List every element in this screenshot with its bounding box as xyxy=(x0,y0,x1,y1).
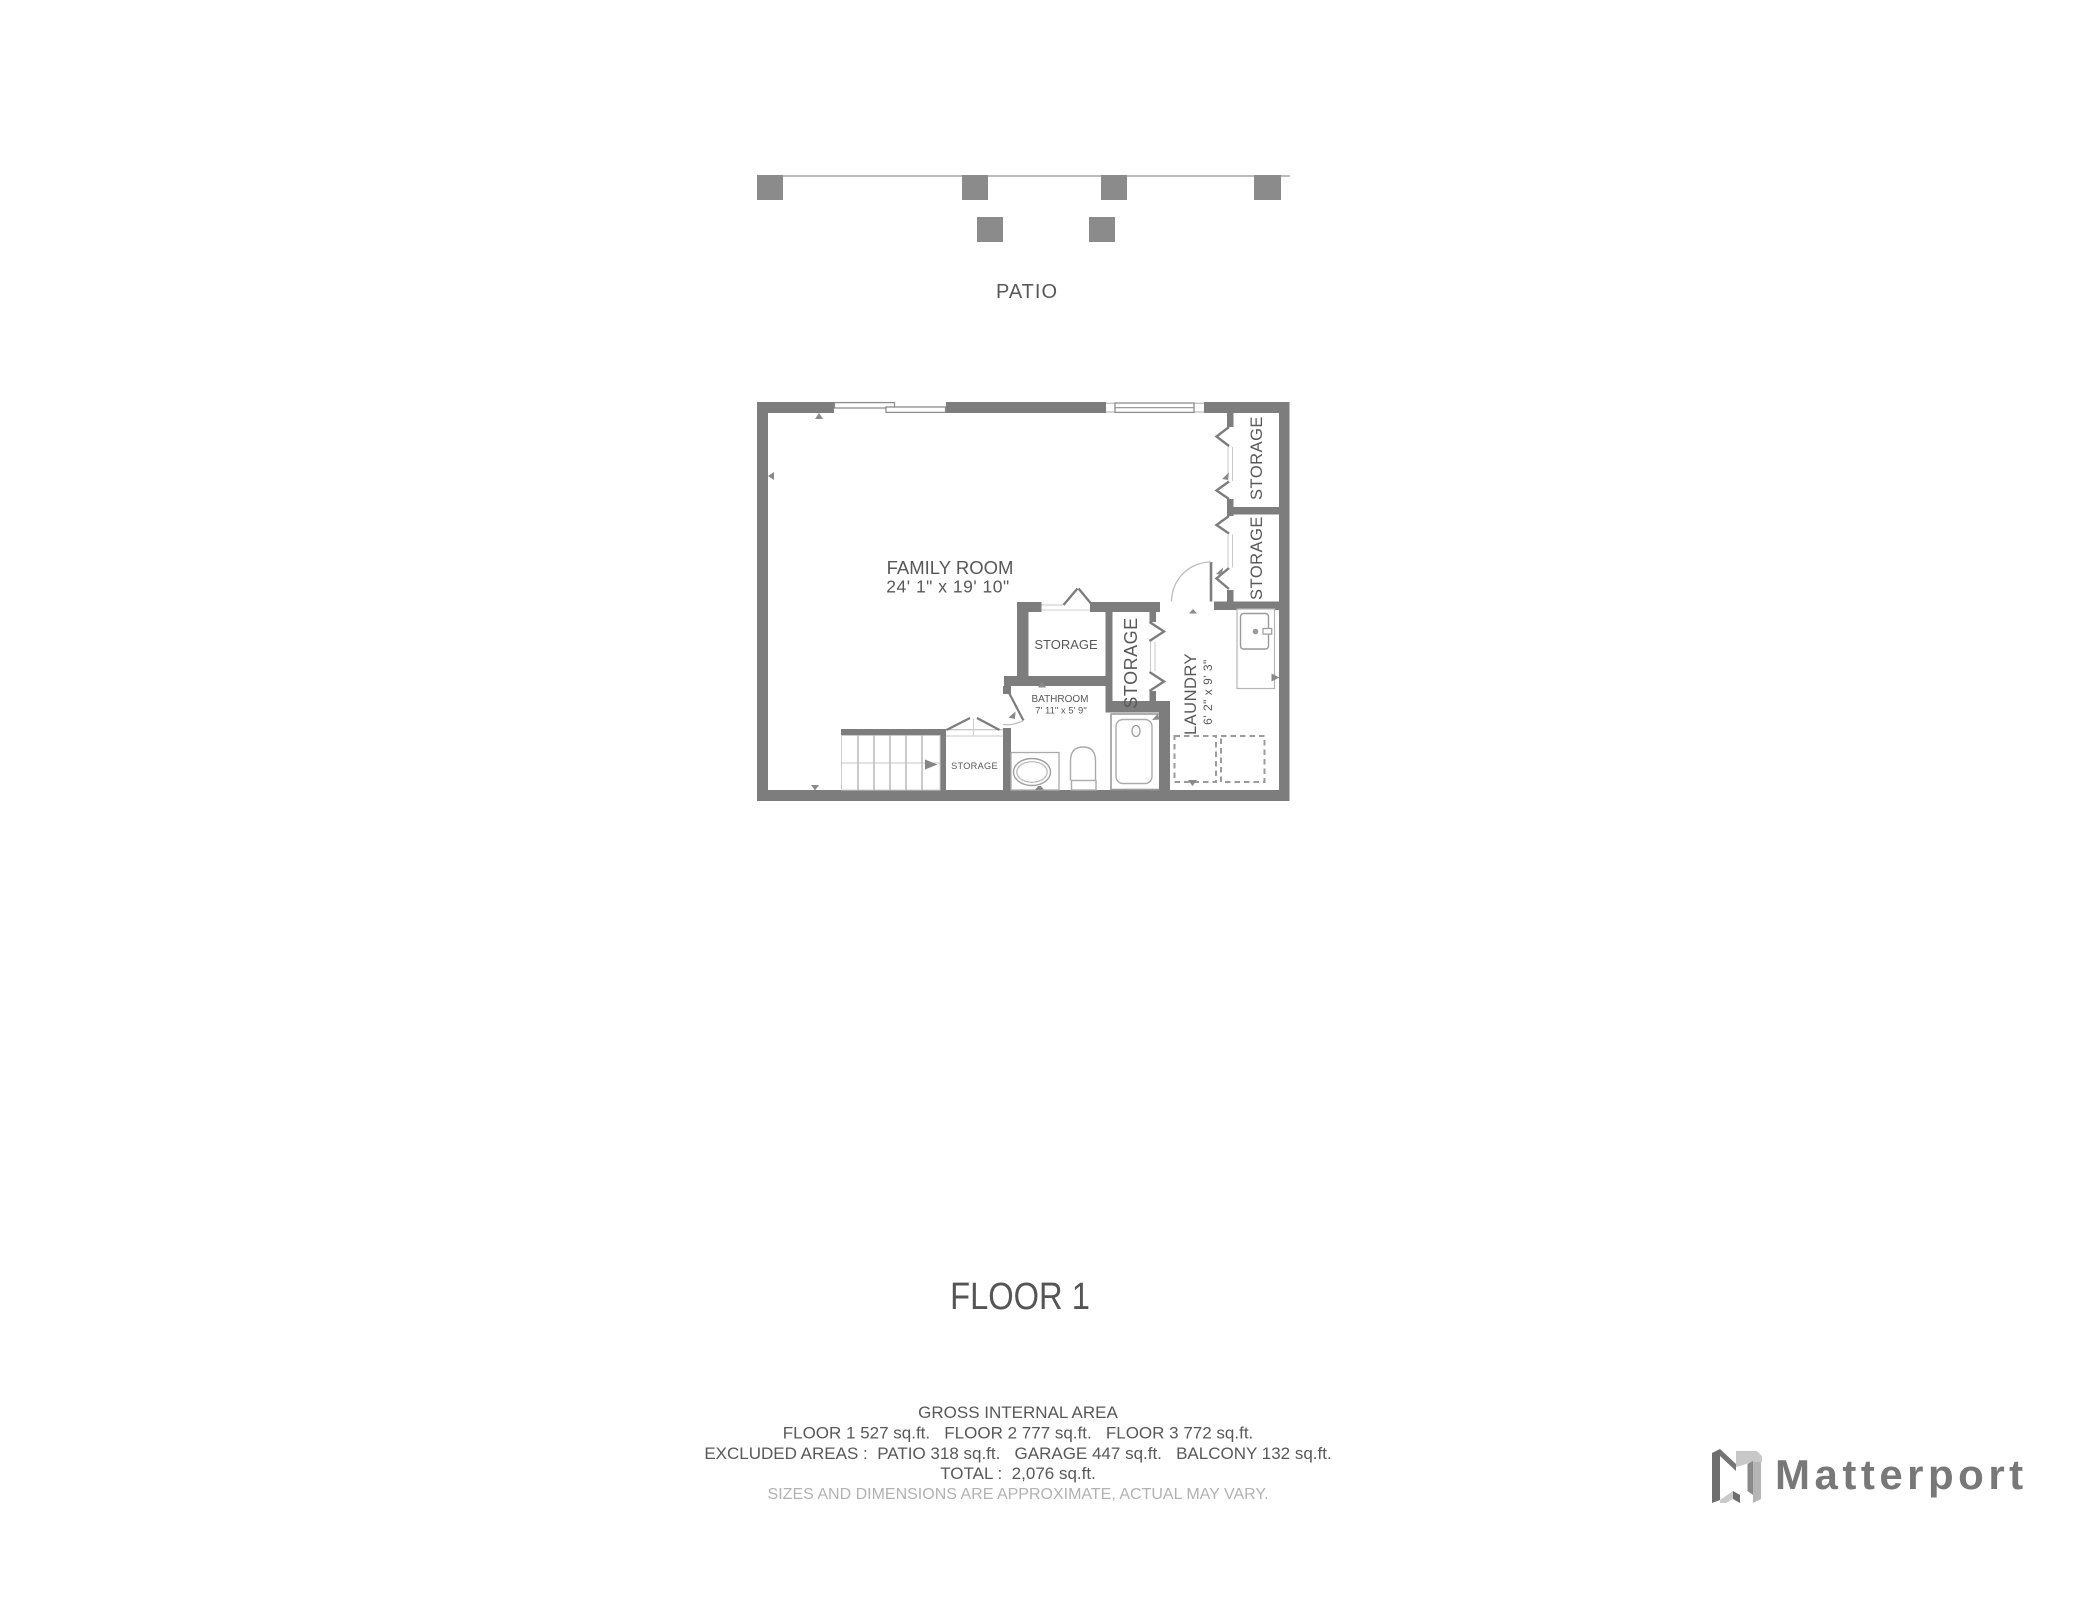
svg-text:Matterport: Matterport xyxy=(1775,1451,2028,1498)
svg-text:SIZES AND DIMENSIONS ARE APPRO: SIZES AND DIMENSIONS ARE APPROXIMATE, AC… xyxy=(768,1486,1269,1503)
svg-text:TOTAL : 2,076 sq.ft.: TOTAL : 2,076 sq.ft. xyxy=(940,1464,1096,1483)
svg-text:STORAGE: STORAGE xyxy=(1248,416,1266,500)
svg-text:EXCLUDED AREAS : PATIO 318 sq: EXCLUDED AREAS : PATIO 318 sq.ft. GARAGE… xyxy=(704,1444,1331,1463)
svg-text:GROSS INTERNAL AREA: GROSS INTERNAL AREA xyxy=(918,1403,1118,1422)
svg-text:STORAGE: STORAGE xyxy=(951,761,998,771)
svg-text:STORAGE: STORAGE xyxy=(1248,516,1266,600)
svg-text:BATHROOM: BATHROOM xyxy=(1031,694,1088,705)
svg-text:6' 2" x 9' 3": 6' 2" x 9' 3" xyxy=(1201,659,1215,725)
svg-text:FAMILY ROOM: FAMILY ROOM xyxy=(887,557,1014,578)
svg-text:7' 11" x 5' 9": 7' 11" x 5' 9" xyxy=(1035,706,1086,717)
svg-text:24' 1" x 19' 10": 24' 1" x 19' 10" xyxy=(886,577,1009,597)
svg-text:LAUNDRY: LAUNDRY xyxy=(1182,653,1200,735)
svg-text:STORAGE: STORAGE xyxy=(1121,617,1141,708)
svg-text:FLOOR 1 527 sq.ft. FLOOR 2 7: FLOOR 1 527 sq.ft. FLOOR 2 777 sq.ft. FL… xyxy=(783,1424,1254,1443)
svg-text:STORAGE: STORAGE xyxy=(1034,637,1098,652)
svg-text:PATIO: PATIO xyxy=(996,281,1058,303)
svg-text:FLOOR 1: FLOOR 1 xyxy=(950,1275,1090,1318)
